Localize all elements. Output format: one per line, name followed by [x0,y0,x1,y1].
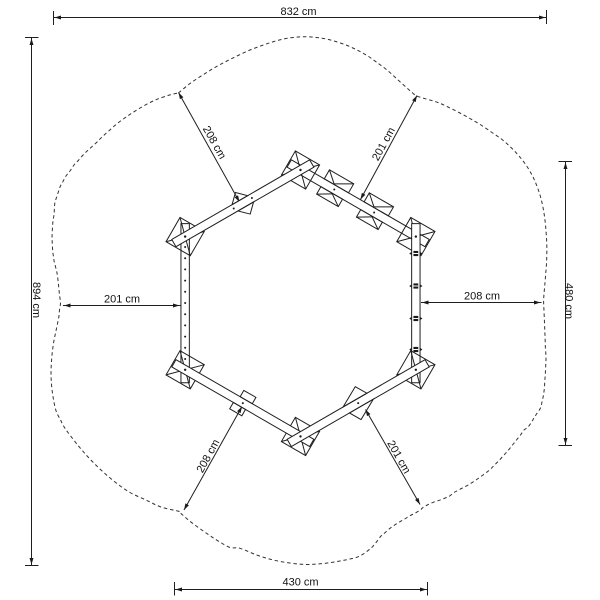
svg-text:894 cm: 894 cm [30,282,42,318]
svg-text:832 cm: 832 cm [280,6,316,18]
svg-text:201 cm: 201 cm [104,294,140,306]
svg-text:430 cm: 430 cm [282,577,318,589]
svg-text:480 cm: 480 cm [563,283,575,319]
svg-text:208 cm: 208 cm [464,291,500,303]
